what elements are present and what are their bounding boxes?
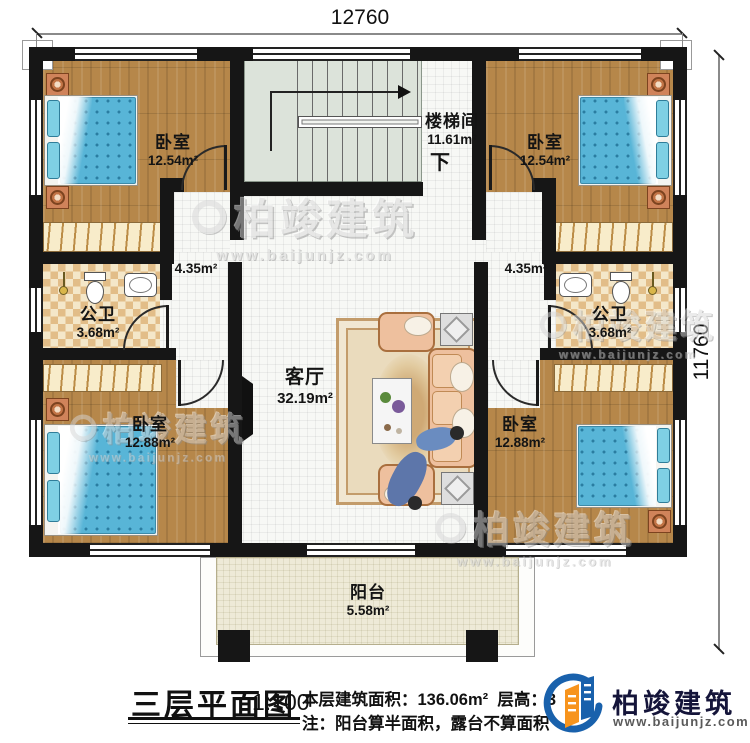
closet-br (554, 364, 673, 392)
corridor-right-area: 4.35m² (490, 261, 562, 278)
dimension-top-value: 12760 (300, 6, 420, 30)
wall-closet-bath-left (29, 252, 172, 264)
stair-down-label: 下 (422, 151, 458, 176)
sink (124, 273, 157, 297)
balcony-column-left (218, 630, 250, 662)
shower-hose (652, 272, 654, 287)
window-left-bedroom-bl (29, 420, 43, 525)
nightstand (648, 510, 671, 533)
door-leaf-bath-left (166, 305, 169, 350)
brand-logo-icon (537, 668, 609, 740)
entry-nook-tl (174, 192, 230, 252)
stair-path-line (270, 91, 400, 93)
room-label-bedroom-tl: 卧室12.54m² (118, 132, 228, 170)
window-right-bedroom-tr (673, 100, 687, 195)
toilet-tank (84, 272, 106, 281)
bed-bl-sheet-fold (58, 426, 98, 534)
room-label-bath-right: 公卫3.68m² (560, 304, 660, 342)
bed-tr-sheet-fold (624, 97, 658, 184)
pillow (47, 432, 60, 474)
room-label-stairwell: 楼梯间11.61m² (400, 111, 504, 149)
stair-direction-arrow (398, 85, 411, 99)
wall-hall-right (474, 262, 488, 543)
closet-tl (43, 222, 162, 252)
toilet-tank (610, 272, 632, 281)
nightstand (46, 186, 69, 209)
wall-bedroom-tr-stub (532, 178, 556, 192)
closet-tr (554, 222, 673, 252)
wall-stair-bottom (230, 182, 423, 196)
nightstand (46, 398, 69, 421)
dimension-top-line (36, 33, 682, 35)
room-label-living: 客厅32.19m² (250, 366, 360, 409)
entry-nook-tr (486, 192, 542, 252)
dimension-right-line (718, 55, 720, 650)
wall-closet-bath-right (544, 252, 687, 264)
wall-hall-left (228, 262, 242, 543)
floor-area-text: 本层建筑面积：136.06m² 层高：3 (302, 686, 556, 710)
window-top-bedroom-tl (75, 47, 197, 61)
side-table-top (440, 313, 473, 346)
title-underline (128, 717, 300, 724)
window-bottom-bedroom-bl (90, 543, 210, 557)
window-top-bedroom-tr (519, 47, 641, 61)
window-right-bedroom-br (673, 420, 687, 525)
bed-br-sheet-fold (622, 426, 656, 506)
window-left-bath (29, 288, 43, 332)
window-bottom-bedroom-br (506, 543, 626, 557)
side-table-bottom (441, 472, 474, 505)
pillow (47, 100, 60, 137)
room-label-bedroom-bl: 卧室12.88m² (95, 414, 205, 452)
dimension-extension (36, 33, 37, 47)
dimension-right-value: 11760 (690, 292, 714, 412)
window-top-stairwell (253, 47, 410, 61)
room-label-bath-left: 公卫3.68m² (48, 304, 148, 342)
person-head (408, 496, 422, 510)
pillow (47, 142, 60, 179)
throw-pillow (404, 316, 432, 336)
person-head (450, 426, 464, 440)
floor-plan-page: 卧室12.54m² 卧室12.54m² 楼梯间11.61m² 下 4.35m² … (0, 0, 750, 743)
flower-decor (392, 400, 405, 413)
pillow (656, 142, 669, 179)
shower-head (59, 286, 68, 295)
pillow (657, 428, 670, 463)
nightstand (647, 73, 670, 96)
plan-scale: 1:100 (252, 689, 310, 716)
plan-note: 注：阳台算半面积，露台不算面积 (302, 710, 550, 734)
door-leaf-bedroom-bl (178, 360, 181, 406)
throw-pillow (450, 362, 474, 392)
door-leaf-bedroom-br (536, 360, 539, 406)
stair-path-line-vertical (270, 91, 272, 151)
wall-stair-left (230, 47, 244, 240)
brand-url: www.baijunjz.com (613, 714, 749, 729)
window-right-bath (673, 288, 687, 332)
balcony-column-right (466, 630, 498, 662)
pillow (657, 468, 670, 503)
cup-decor (396, 428, 402, 434)
cup-decor (384, 424, 391, 431)
sink (559, 273, 592, 297)
window-balcony-door (307, 543, 415, 557)
coffee-table (372, 378, 412, 444)
room-label-bedroom-tr: 卧室12.54m² (490, 132, 600, 170)
nightstand (46, 73, 69, 96)
door-leaf-bath-right (548, 305, 551, 350)
room-label-balcony: 阳台5.58m² (313, 582, 423, 620)
pillow (656, 100, 669, 137)
nightstand (647, 186, 670, 209)
dimension-extension (682, 33, 683, 47)
window-left-bedroom-tl (29, 100, 43, 195)
plant-decor (380, 392, 391, 403)
shower-head (648, 286, 657, 295)
corridor-left-area: 4.35m² (160, 261, 232, 278)
pillow (47, 480, 60, 522)
room-label-bedroom-br: 卧室12.88m² (465, 414, 575, 452)
bed-tl-sheet-fold (58, 97, 92, 184)
closet-bl (43, 364, 162, 392)
shower-hose (63, 272, 65, 287)
